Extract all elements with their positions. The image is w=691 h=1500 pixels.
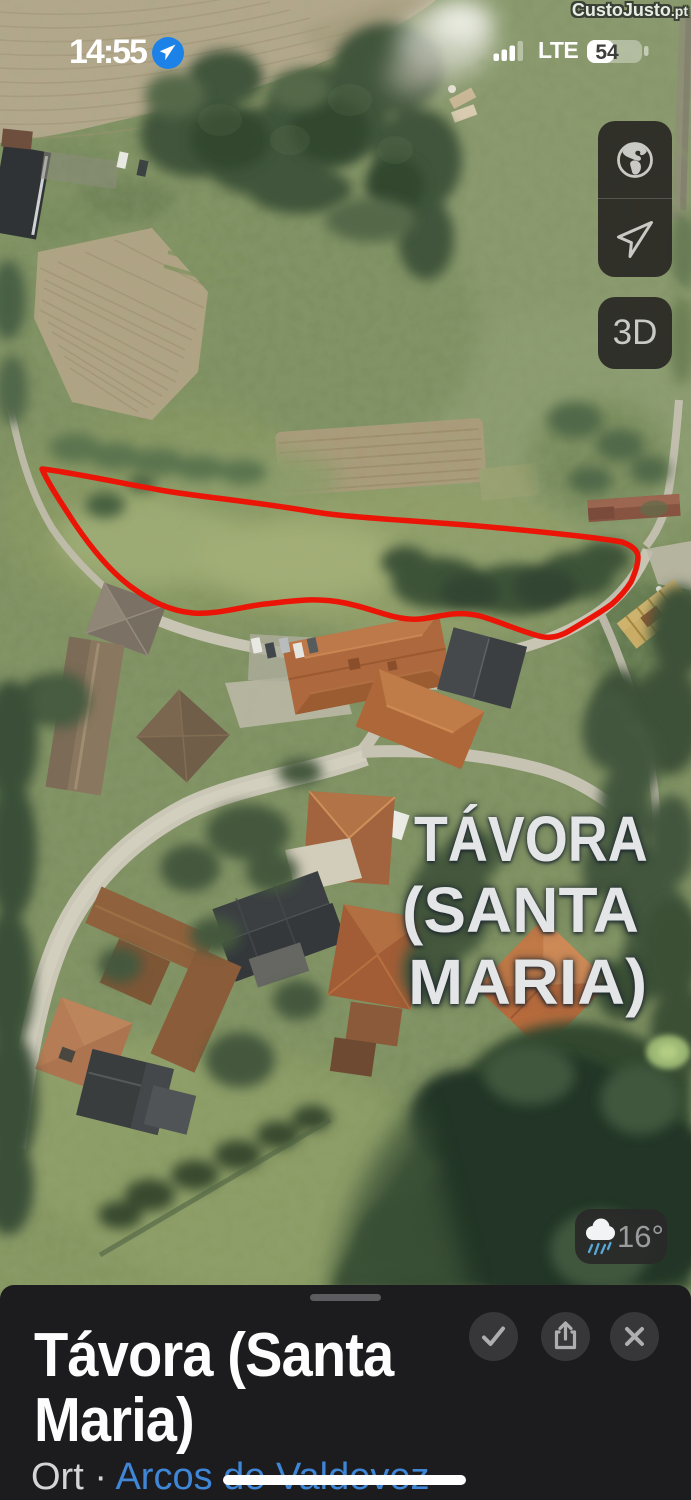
svg-text:54: 54 bbox=[595, 41, 619, 64]
